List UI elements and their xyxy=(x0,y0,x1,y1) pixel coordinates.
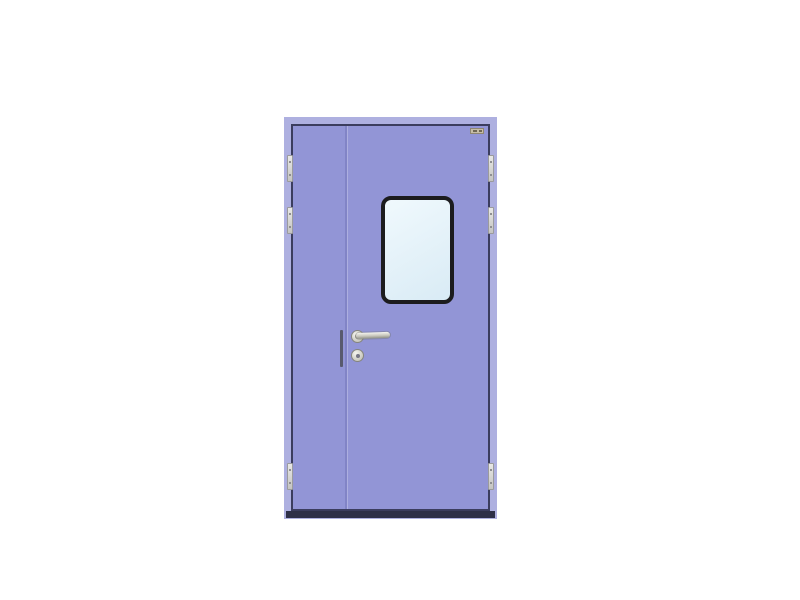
hinge-screw-icon xyxy=(490,213,492,215)
hinge-screw-icon xyxy=(490,174,492,176)
hinge-screw-icon xyxy=(490,469,492,471)
right-hinge xyxy=(488,463,494,490)
door-assembly xyxy=(284,117,497,519)
lock-edge-plate xyxy=(340,330,343,367)
hinge-screw-icon xyxy=(490,226,492,228)
left-hinge xyxy=(287,207,293,234)
bottom-threshold xyxy=(286,511,495,518)
brand-label xyxy=(470,128,484,134)
right-hinge xyxy=(488,207,494,234)
hinge-screw-icon xyxy=(289,213,291,215)
hinge-screw-icon xyxy=(289,469,291,471)
door-leaves-panel xyxy=(291,124,490,511)
lever-handle xyxy=(356,332,390,339)
left-hinge xyxy=(287,155,293,182)
left-hinge xyxy=(287,463,293,490)
hinge-screw-icon xyxy=(289,174,291,176)
white-background xyxy=(0,0,800,600)
cylinder-lock xyxy=(351,349,364,362)
leaf-meeting-gap xyxy=(345,126,347,509)
window-glass xyxy=(385,200,450,300)
hinge-screw-icon xyxy=(490,482,492,484)
hinge-screw-icon xyxy=(289,161,291,163)
hinge-screw-icon xyxy=(289,482,291,484)
hinge-screw-icon xyxy=(490,161,492,163)
right-hinge xyxy=(488,155,494,182)
label-mark xyxy=(473,130,477,132)
vision-window xyxy=(381,196,454,304)
label-mark xyxy=(479,130,482,132)
keyhole-icon xyxy=(356,354,360,358)
hinge-screw-icon xyxy=(289,226,291,228)
